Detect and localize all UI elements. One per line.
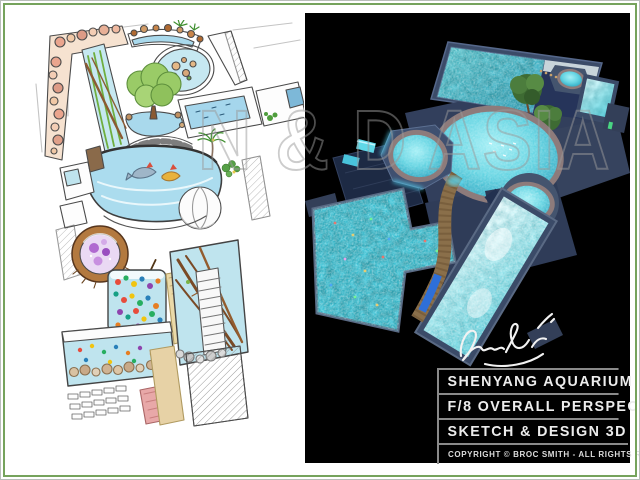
side-tank-room [178, 82, 304, 138]
dome [179, 187, 221, 229]
presentation-board: SHENYANG AQUARIUM F/8 OVERALL PERSPECTIV… [0, 0, 640, 480]
aquarium-plan-sketch [28, 20, 304, 460]
concept-sketch-panel [28, 20, 304, 460]
render-3d-panel: SHENYANG AQUARIUM F/8 OVERALL PERSPECTIV… [305, 13, 630, 463]
tree-island [126, 63, 185, 136]
kelp-tank [82, 44, 130, 156]
work-type-label: SKETCH & DESIGN 3D [439, 418, 619, 443]
copyright-line: COPYRIGHT © BROC SMITH - ALL RIGHTS RESE… [439, 443, 628, 464]
view-label: F/8 OVERALL PERSPECTIVE [439, 393, 619, 418]
benches [68, 386, 130, 419]
title-block: SHENYANG AQUARIUM F/8 OVERALL PERSPECTIV… [437, 368, 628, 464]
project-title: SHENYANG AQUARIUM [439, 368, 619, 393]
